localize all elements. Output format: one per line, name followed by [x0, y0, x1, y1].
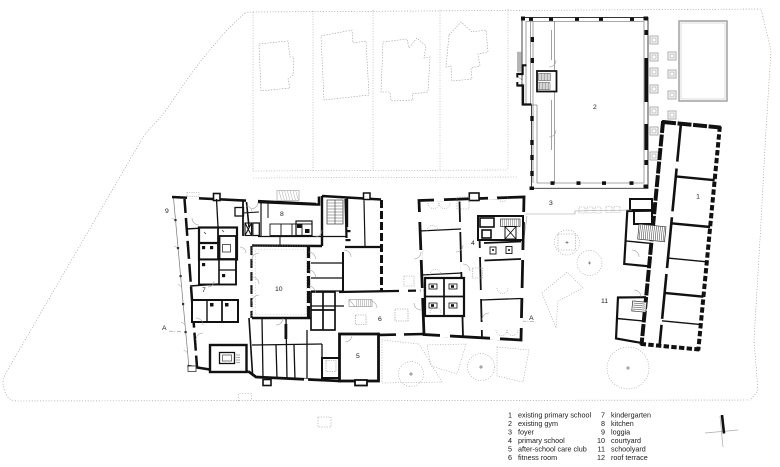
- svg-text:3: 3: [549, 200, 553, 207]
- svg-text:6: 6: [508, 453, 512, 462]
- svg-text:4: 4: [471, 240, 475, 247]
- svg-text:7: 7: [202, 287, 206, 294]
- svg-text:10: 10: [275, 286, 283, 293]
- svg-text:8: 8: [280, 211, 284, 218]
- svg-text:6: 6: [378, 316, 382, 323]
- svg-text:fitness room: fitness room: [518, 453, 557, 462]
- svg-text:12: 12: [597, 453, 605, 462]
- svg-text:9: 9: [165, 208, 169, 215]
- svg-text:2: 2: [593, 104, 597, 111]
- svg-text:A: A: [162, 325, 167, 332]
- svg-text:roof terrace: roof terrace: [611, 453, 648, 462]
- svg-text:A: A: [529, 315, 534, 322]
- svg-text:11: 11: [601, 298, 608, 305]
- svg-text:1: 1: [696, 194, 700, 201]
- svg-text:5: 5: [356, 353, 360, 360]
